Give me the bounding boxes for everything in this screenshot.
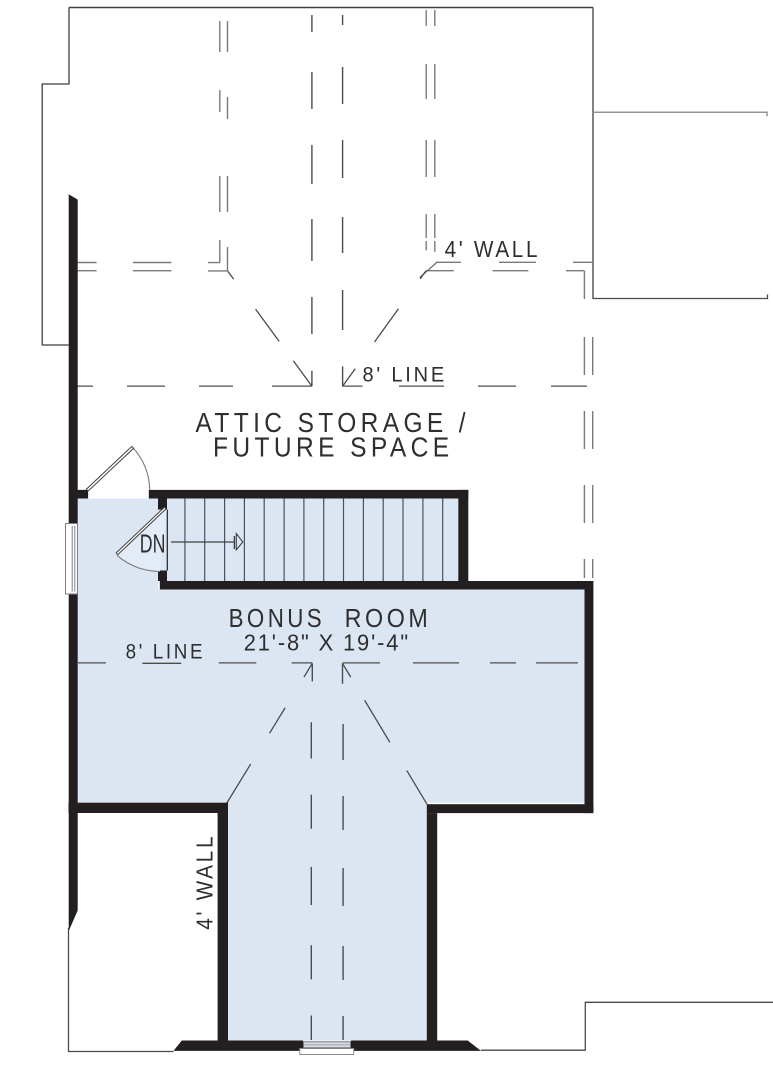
svg-text:ROOM: ROOM: [345, 603, 432, 633]
svg-text:BONUS: BONUS: [229, 603, 326, 633]
svg-text:8' LINE: 8' LINE: [363, 363, 448, 387]
svg-text:4' WALL: 4' WALL: [192, 834, 218, 930]
svg-text:4' WALL: 4' WALL: [445, 236, 541, 262]
svg-text:FUTURE SPACE: FUTURE SPACE: [213, 431, 454, 462]
svg-text:8' LINE: 8' LINE: [126, 639, 206, 663]
svg-text:DN: DN: [140, 529, 166, 559]
svg-text:21'-8" X 19'-4": 21'-8" X 19'-4": [244, 630, 410, 656]
